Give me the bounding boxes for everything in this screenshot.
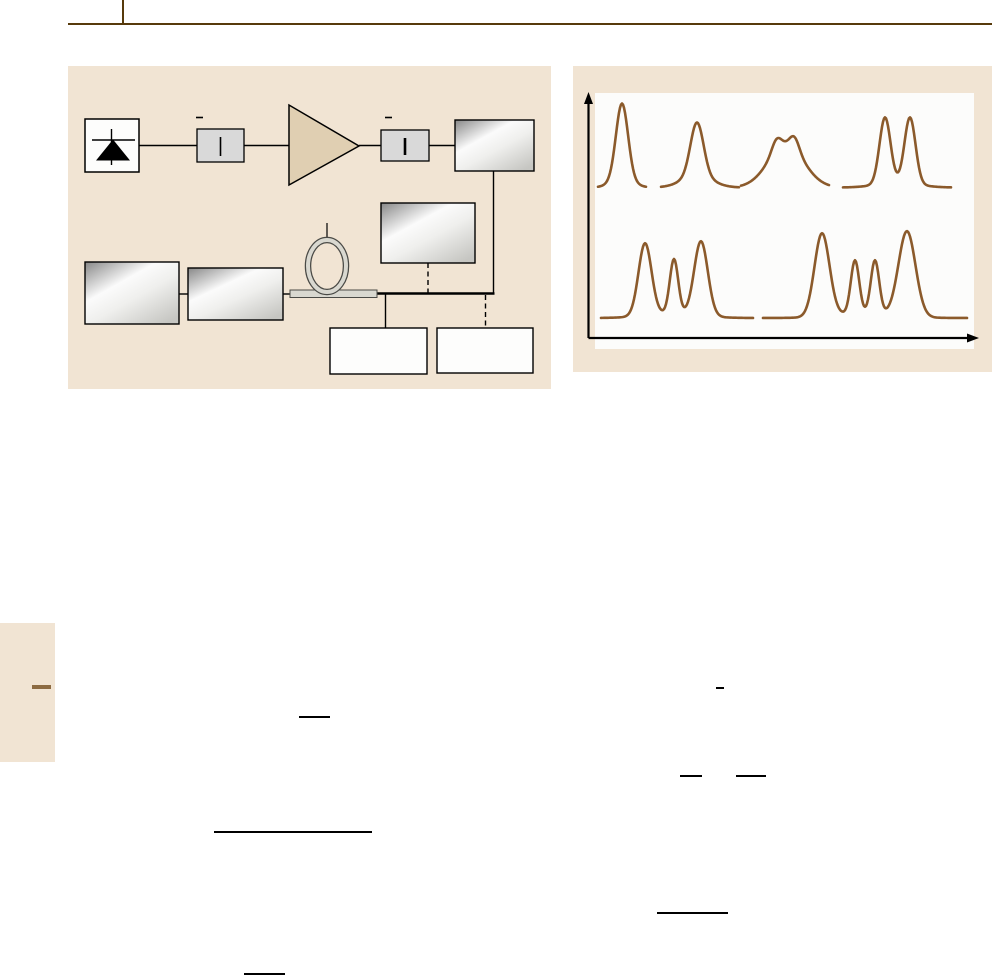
instrument-box-top [455, 120, 534, 171]
header-column-tick [122, 0, 124, 25]
margin-section-block [0, 623, 55, 762]
instrument-box-left2 [188, 268, 283, 320]
y-axis-arrowhead [584, 92, 593, 104]
figure-right-pulse-panel [573, 66, 992, 372]
margin-section-dash [32, 685, 51, 689]
setup-schematic [68, 66, 551, 389]
output-box-2 [437, 328, 533, 373]
fraction-bar-1 [299, 716, 330, 718]
output-box-1 [330, 328, 427, 374]
equation-rule [214, 831, 372, 833]
fraction-bar-2b [736, 775, 766, 777]
instrument-box-left [85, 262, 179, 324]
scanned-paper-page [0, 0, 992, 978]
fraction-bar-4 [244, 973, 285, 975]
fraction-bar-3 [657, 912, 728, 914]
plot-area [595, 93, 974, 349]
pulse-evolution-chart [573, 66, 992, 372]
header-rule [68, 23, 992, 25]
figure-left-setup-panel [68, 66, 551, 389]
amplifier-triangle [289, 105, 359, 185]
overbar-small [716, 687, 724, 689]
fiber-loop-core [308, 240, 346, 292]
instrument-box-middle [381, 203, 475, 263]
fraction-bar-2a [680, 775, 702, 777]
